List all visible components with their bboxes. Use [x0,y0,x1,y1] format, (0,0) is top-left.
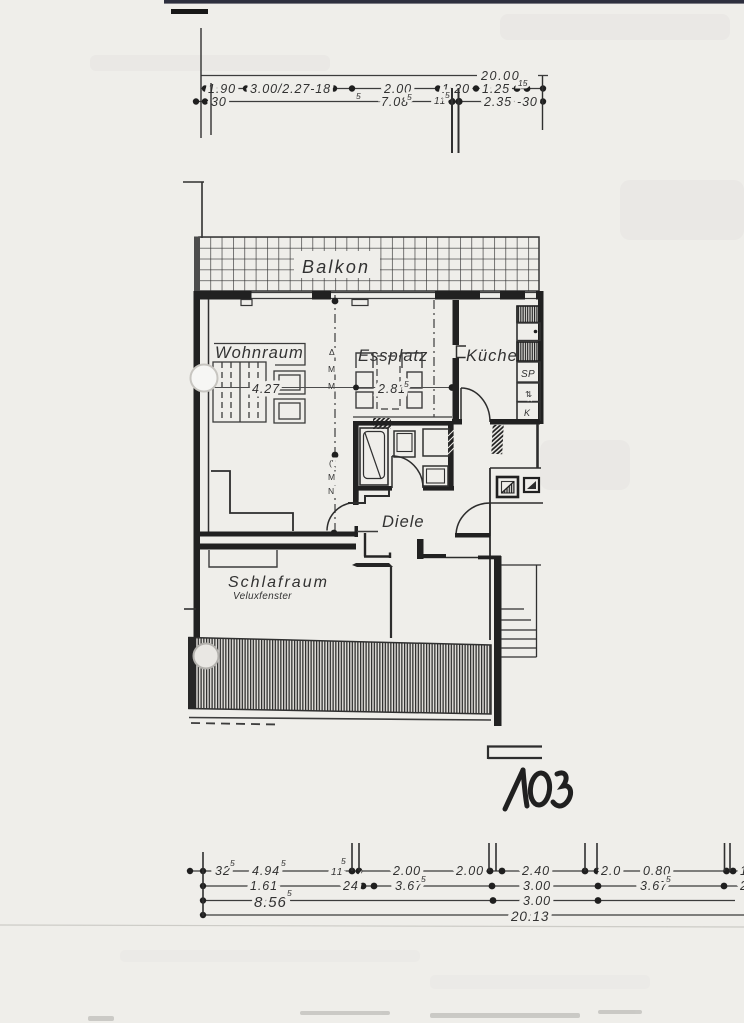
svg-text:2.00: 2.00 [392,864,421,878]
svg-text:3.00/2.27-18: 3.00/2.27-18 [250,82,331,96]
svg-text:5: 5 [356,91,361,101]
svg-text:2: 2 [739,879,744,893]
svg-text:K: K [524,408,531,418]
svg-text:2.40: 2.40 [521,864,550,878]
svg-text:⇅: ⇅ [525,389,532,399]
svg-text:5: 5 [230,858,235,868]
svg-text:Diele: Diele [382,513,425,531]
svg-text:5: 5 [341,856,346,866]
svg-text:5: 5 [407,92,412,102]
svg-text:SP: SP [521,369,535,380]
svg-text:2.35: 2.35 [483,95,512,109]
svg-text:M: M [328,364,335,374]
svg-text:3.67: 3.67 [640,879,668,893]
svg-text:-30: -30 [517,95,538,109]
svg-text:Δ: Δ [329,347,335,357]
svg-text:5: 5 [666,874,671,884]
svg-text:4.27: 4.27 [252,382,280,396]
svg-text:32: 32 [215,864,231,878]
svg-text:M: M [328,381,335,391]
svg-text:3.00: 3.00 [523,894,551,908]
svg-text:1.61: 1.61 [250,879,278,893]
svg-text:20.13: 20.13 [510,909,549,924]
svg-text:5: 5 [404,379,409,389]
svg-text:5: 5 [445,90,450,100]
svg-text:Küche: Küche [466,347,518,365]
svg-text:Schlafraum: Schlafraum [228,574,329,591]
svg-text:Veluxfenster: Veluxfenster [233,591,292,602]
svg-text:4.94: 4.94 [252,864,280,878]
svg-text:2.0: 2.0 [600,864,621,878]
svg-text:Wohnraum: Wohnraum [215,344,304,362]
svg-text:2.81: 2.81 [377,382,406,396]
svg-text:1.90: 1.90 [208,82,236,96]
svg-text:N: N [328,486,334,496]
svg-text:Balkon: Balkon [302,257,370,277]
svg-text:3.00: 3.00 [523,879,551,893]
svg-text:30: 30 [211,95,227,109]
svg-text:7.08: 7.08 [381,95,409,109]
svg-text:11: 11 [331,867,343,878]
svg-text:24: 24 [342,879,359,893]
svg-text:5: 5 [421,874,426,884]
svg-text:5: 5 [281,858,286,868]
svg-text:8.56: 8.56 [254,894,287,911]
svg-text:15: 15 [518,78,528,88]
svg-text:20.00: 20.00 [480,69,520,83]
svg-text:(': (' [329,458,334,468]
svg-text:2.00: 2.00 [455,864,484,878]
svg-text:M: M [328,472,335,482]
svg-text:1: 1 [740,864,744,878]
svg-text:5: 5 [287,888,292,898]
svg-text:3.67: 3.67 [395,879,423,893]
svg-text:1.25: 1.25 [482,82,510,96]
